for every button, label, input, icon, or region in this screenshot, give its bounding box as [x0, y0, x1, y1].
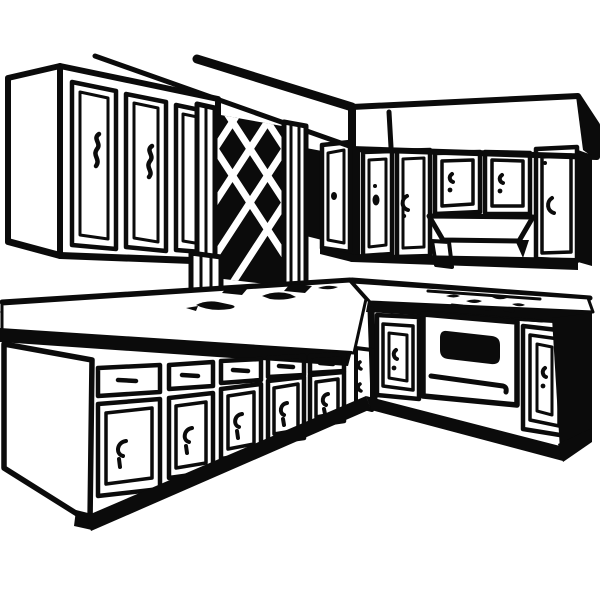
cabinet-door-panel: [389, 333, 407, 381]
kitchen-illustration: Black-and-white vintage line-art clipart…: [0, 0, 600, 600]
upper-cabinets-left: [8, 66, 218, 262]
door-knob-dot: [373, 184, 377, 188]
door-knob-dot: [392, 366, 397, 371]
door-knob-dot: [543, 161, 547, 165]
cabinet-door-panel: [228, 392, 254, 449]
door-knob-dot: [448, 188, 453, 193]
door-handle-icon: [281, 403, 287, 425]
door-handle-icon: [500, 175, 503, 183]
base-cabinets-right: [356, 310, 592, 462]
door-handle-icon: [185, 428, 192, 453]
door-handle-icon: [95, 134, 99, 166]
door-knob-dot: [541, 384, 546, 389]
door-knob-dot: [402, 214, 406, 218]
window-pillar-right: [284, 122, 306, 300]
door-handle-icon: [148, 146, 152, 177]
filler-marks: [358, 362, 361, 391]
door-handle-icon: [118, 441, 126, 467]
cabinet-door-panel: [492, 160, 523, 206]
drawer-handle-icon: [118, 380, 136, 381]
hood-canopy: [429, 216, 533, 241]
door-handle-icon: [450, 174, 453, 182]
oven: [423, 314, 517, 405]
hood-support-right: [515, 240, 529, 258]
soffit-divider: [389, 112, 391, 147]
base-run-end-dark: [552, 313, 592, 450]
cabinet-door-panel: [537, 344, 552, 415]
drawer-handle-icon: [279, 366, 293, 367]
door-handle-icon: [543, 368, 546, 377]
drawer-handle-icon: [233, 370, 248, 371]
cabinet-door-panel: [176, 402, 206, 468]
cabinet-door-panel: [274, 384, 298, 434]
kitchen-line-art: Retro kitchen clipart: [0, 0, 600, 600]
door-handle-icon: [394, 350, 397, 359]
cabinet-door-panel: [106, 408, 152, 484]
drawer-handle-icon: [320, 363, 333, 364]
upper-run-bottom-band: [352, 254, 578, 270]
door-knob-dot: [498, 189, 503, 194]
upper-run-end-dark: [578, 150, 592, 266]
door-handle-icon: [403, 196, 408, 210]
cabinet-door-panel: [403, 158, 424, 248]
cabinet-door-panel: [442, 160, 473, 206]
door-handle-icon: [373, 195, 380, 206]
door-handle-icon: [235, 414, 242, 438]
drawer-handle-icon: [182, 375, 198, 376]
cabinet-side-panel: [8, 66, 60, 256]
door-handle-icon: [548, 198, 554, 213]
base-side-panel: [4, 344, 92, 522]
door-handle-icon: [323, 394, 328, 414]
base-cabinets-left: [4, 344, 371, 531]
door-handle-icon: [331, 192, 337, 200]
